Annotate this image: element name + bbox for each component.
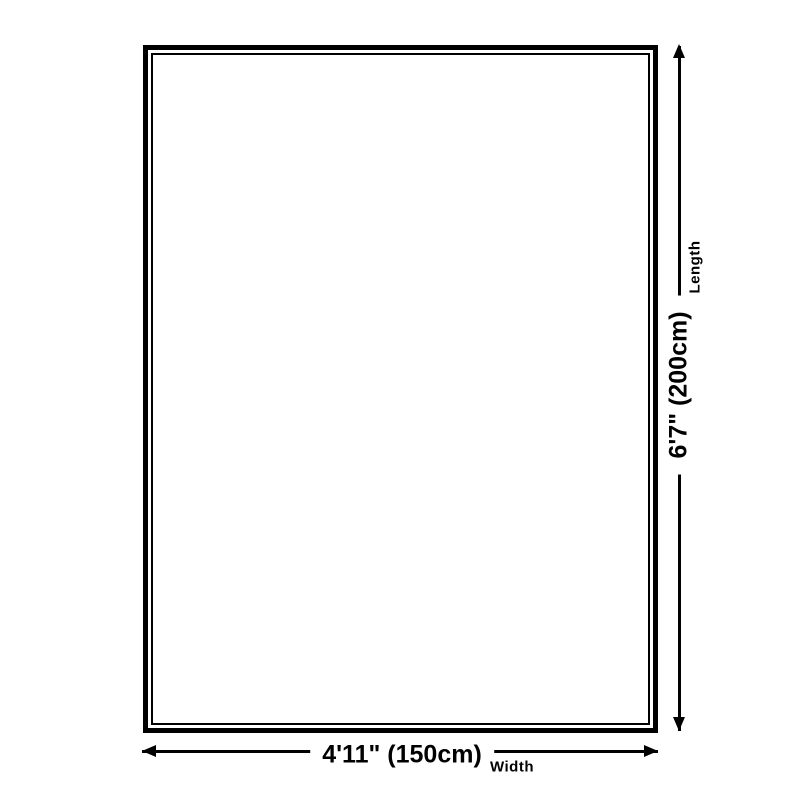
length-label: Length — [687, 241, 704, 294]
rug-size-diagram: 6'7" (200cm) Length 4'11" (150cm) Width — [0, 0, 800, 800]
arrow-down-icon — [673, 717, 685, 731]
width-value: 4'11" (150cm) — [310, 741, 494, 770]
arrow-right-icon — [644, 745, 658, 757]
rug-outline — [143, 45, 658, 733]
arrow-up-icon — [673, 44, 685, 58]
arrow-left-icon — [142, 745, 156, 757]
length-value: 6'7" (200cm) — [665, 295, 694, 474]
rug-inner-border — [151, 53, 650, 725]
width-label: Width — [490, 759, 534, 776]
